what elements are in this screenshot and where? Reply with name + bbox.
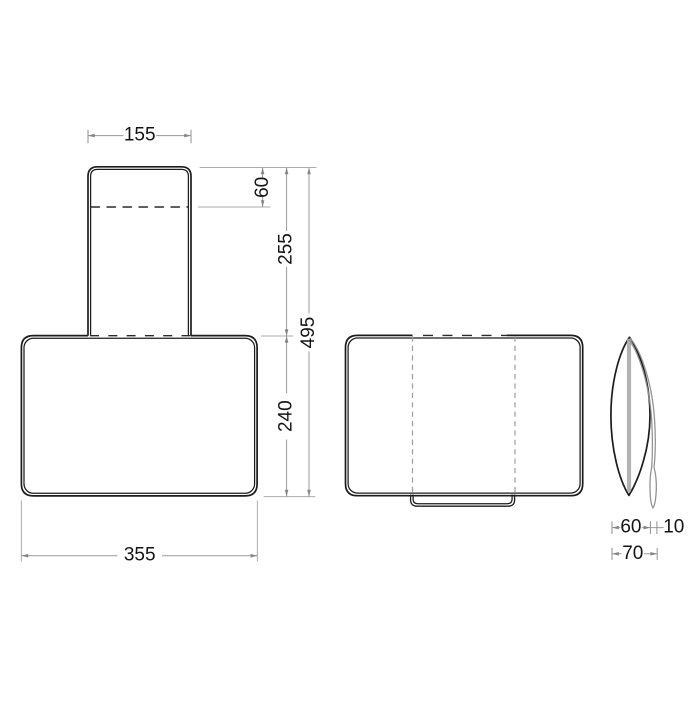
svg-text:355: 355 [124,545,156,566]
svg-text:255: 255 [276,233,297,265]
svg-text:10: 10 [663,517,684,538]
svg-text:240: 240 [276,400,297,432]
svg-text:60: 60 [252,177,273,198]
svg-text:60: 60 [620,517,641,538]
svg-text:495: 495 [298,317,319,349]
svg-text:155: 155 [124,125,156,146]
svg-text:70: 70 [622,543,643,564]
